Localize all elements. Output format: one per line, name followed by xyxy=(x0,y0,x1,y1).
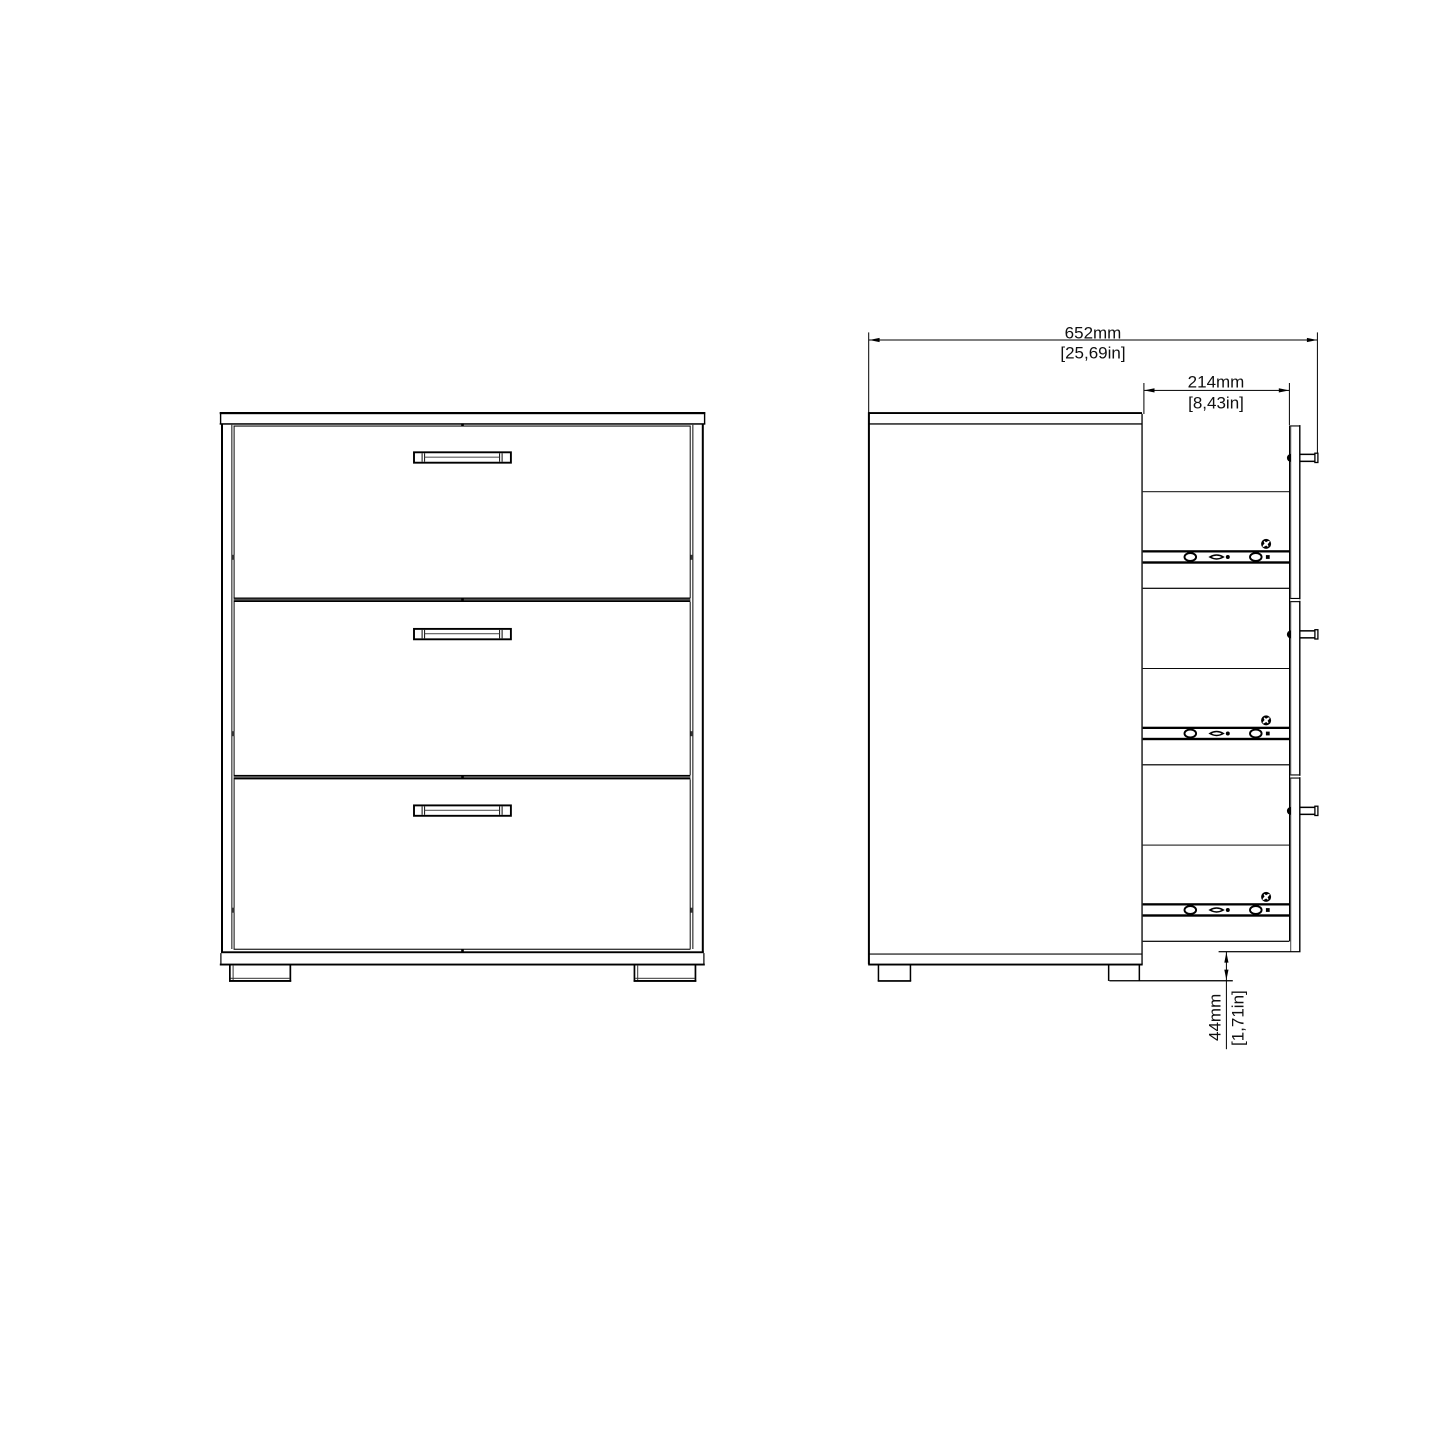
svg-text:652mm: 652mm xyxy=(1065,324,1122,343)
svg-text:[8,43in]: [8,43in] xyxy=(1188,394,1244,413)
svg-text:[1,71in]: [1,71in] xyxy=(1229,990,1248,1046)
svg-text:[25,69in]: [25,69in] xyxy=(1060,343,1125,362)
svg-text:214mm: 214mm xyxy=(1188,372,1245,391)
svg-text:44mm: 44mm xyxy=(1205,994,1224,1041)
